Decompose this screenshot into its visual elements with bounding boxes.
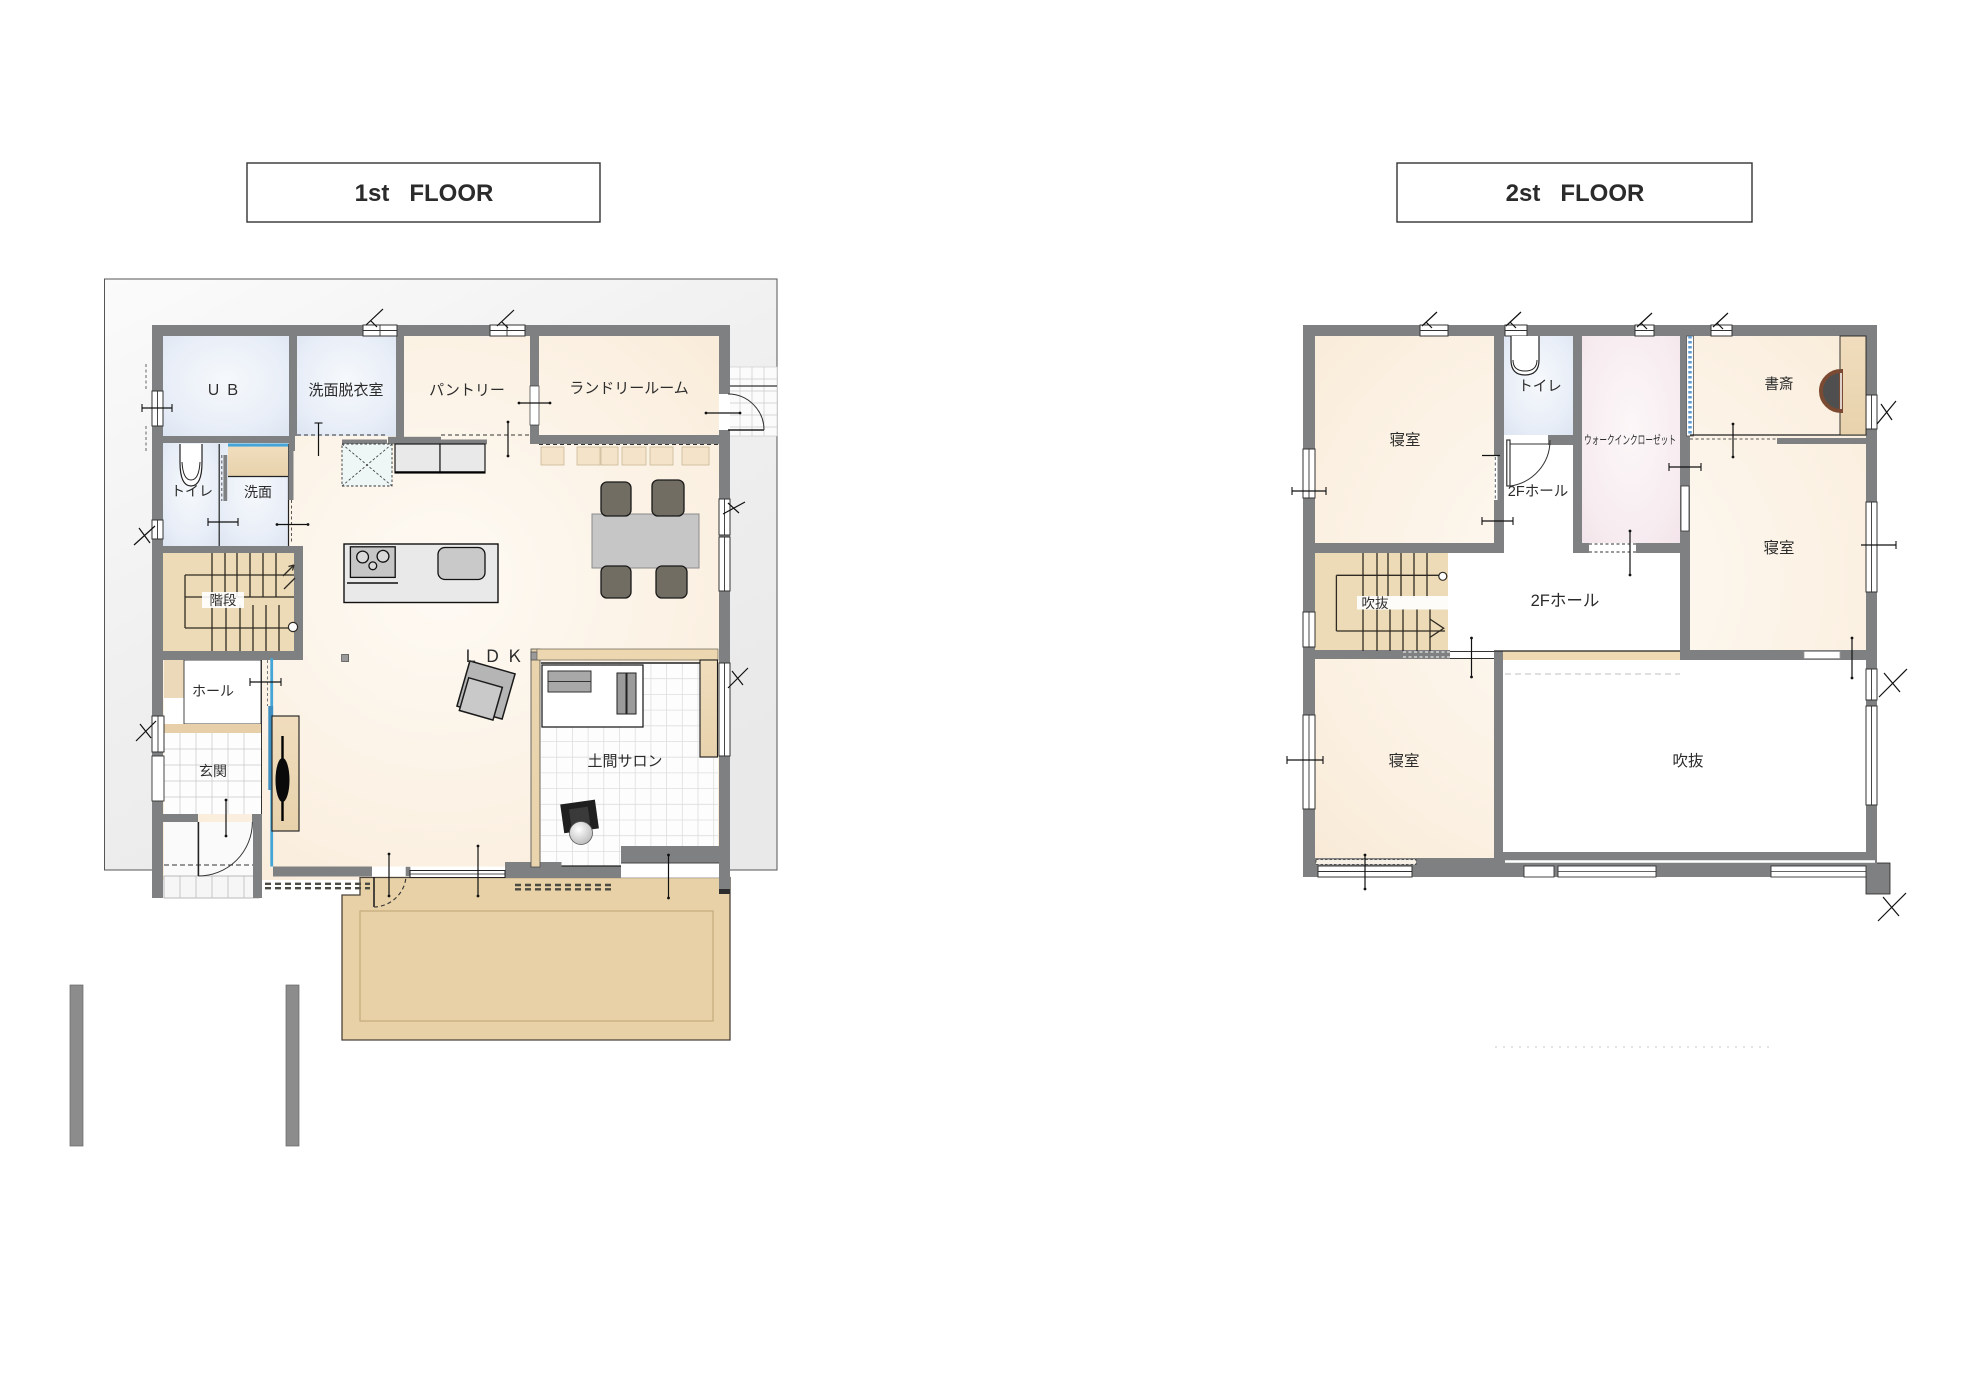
svg-text:洗面: 洗面	[244, 484, 272, 500]
svg-text:玄関: 玄関	[199, 763, 227, 779]
svg-text:1st FLOOR: 1st FLOOR	[355, 180, 494, 207]
svg-text:ＵＢ: ＵＢ	[206, 382, 244, 399]
svg-text:パントリー: パントリー	[429, 382, 505, 399]
svg-text:2Fホール: 2Fホール	[1531, 592, 1600, 610]
svg-text:洗面脱衣室: 洗面脱衣室	[308, 382, 383, 399]
svg-text:土間サロン: 土間サロン	[587, 753, 662, 770]
svg-text:ＬＤＫ: ＬＤＫ	[462, 647, 528, 666]
svg-text:書斎: 書斎	[1765, 375, 1794, 393]
svg-text:ウォークインクローゼット: ウォークインクローゼット	[1584, 433, 1676, 447]
svg-text:吹抜: 吹抜	[1672, 752, 1703, 770]
svg-text:ホール: ホール	[192, 683, 234, 699]
svg-text:2st FLOOR: 2st FLOOR	[1506, 180, 1645, 207]
svg-text:階段: 階段	[210, 593, 237, 608]
svg-text:トイレ: トイレ	[171, 483, 213, 499]
svg-text:吹抜: 吹抜	[1362, 596, 1390, 611]
svg-text:2Fホール: 2Fホール	[1508, 484, 1568, 500]
svg-text:寝室: 寝室	[1389, 430, 1420, 449]
svg-text:ランドリールーム: ランドリールーム	[569, 380, 689, 397]
svg-text:寝室: 寝室	[1388, 751, 1419, 770]
svg-text:トイレ: トイレ	[1518, 379, 1562, 395]
svg-text:寝室: 寝室	[1763, 538, 1794, 557]
